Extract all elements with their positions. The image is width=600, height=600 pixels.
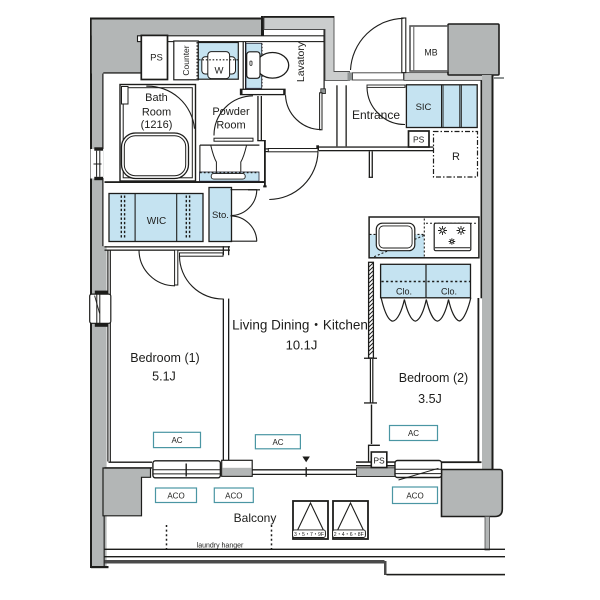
svg-text:AC: AC — [171, 436, 182, 445]
svg-text:10.1J: 10.1J — [286, 338, 318, 353]
svg-text:PS: PS — [413, 135, 425, 145]
svg-text:Balcony: Balcony — [234, 511, 277, 525]
svg-text:ACO: ACO — [167, 491, 184, 500]
svg-text:Entrance: Entrance — [352, 108, 400, 122]
svg-text:W: W — [215, 66, 224, 77]
svg-text:PS: PS — [373, 456, 385, 466]
svg-text:ACO: ACO — [225, 491, 242, 500]
svg-text:AC: AC — [272, 438, 283, 447]
svg-text:Bedroom (1): Bedroom (1) — [130, 351, 199, 365]
svg-text:Clo.: Clo. — [396, 287, 412, 297]
svg-text:5.1J: 5.1J — [152, 370, 176, 384]
svg-text:Counter: Counter — [181, 45, 191, 75]
svg-text:(1216): (1216) — [141, 119, 173, 131]
svg-text:Room: Room — [216, 120, 245, 132]
svg-text:Powder: Powder — [212, 106, 250, 118]
svg-text:ACO: ACO — [406, 492, 423, 501]
svg-text:PS: PS — [150, 53, 163, 64]
svg-text:SIC: SIC — [416, 102, 432, 113]
svg-text:3.5J: 3.5J — [418, 392, 442, 406]
svg-text:Lavatory: Lavatory — [295, 41, 307, 82]
svg-text:R: R — [452, 151, 460, 163]
svg-text:Bath: Bath — [145, 92, 168, 104]
svg-text:3・5・7・9F: 3・5・7・9F — [294, 532, 324, 538]
svg-text:WIC: WIC — [147, 216, 166, 227]
svg-text:Sto.: Sto. — [212, 210, 229, 221]
svg-text:MB: MB — [424, 48, 437, 58]
svg-text:Clo.: Clo. — [441, 287, 457, 297]
svg-text:Room: Room — [142, 107, 171, 119]
svg-text:Bedroom (2): Bedroom (2) — [399, 371, 468, 385]
svg-text:Living Dining・Kitchen: Living Dining・Kitchen — [232, 318, 368, 333]
svg-text:2・4・6・8F: 2・4・6・8F — [334, 532, 364, 538]
svg-text:laundry hanger: laundry hanger — [197, 543, 244, 550]
svg-text:AC: AC — [408, 429, 419, 438]
